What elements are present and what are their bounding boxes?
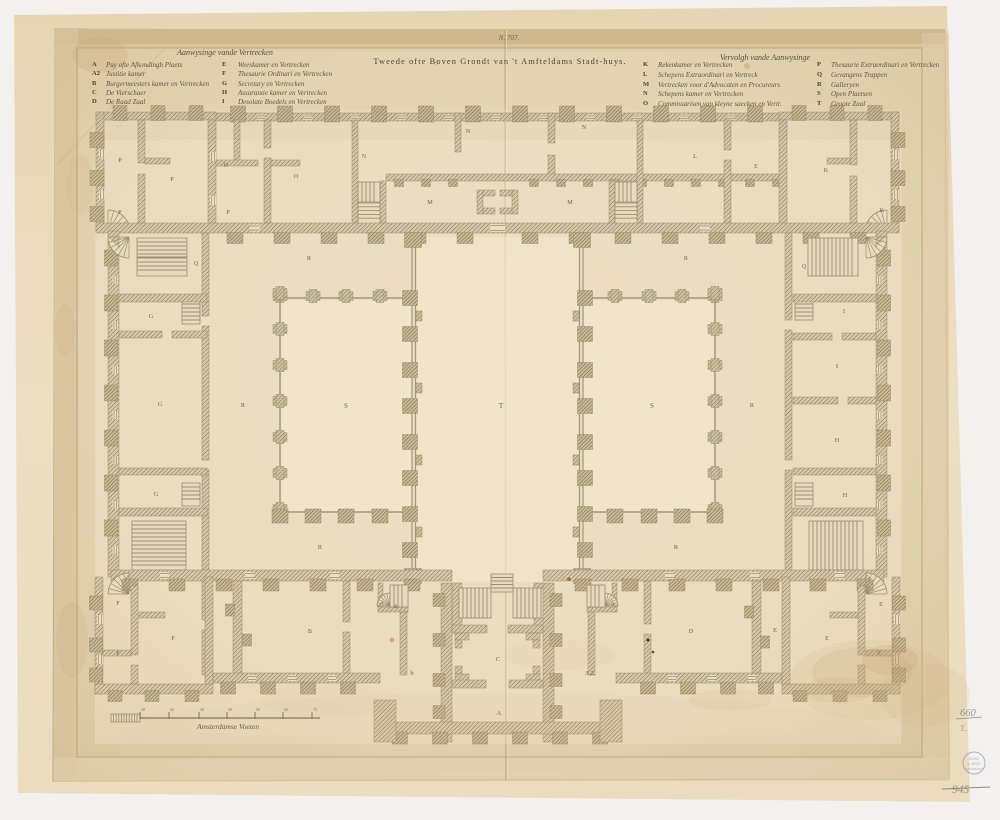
svg-text:O: O bbox=[294, 173, 299, 180]
svg-text:AMSTERDAM: AMSTERDAM bbox=[965, 767, 984, 771]
svg-text:E: E bbox=[879, 601, 883, 608]
svg-text:N: N bbox=[362, 153, 367, 160]
svg-text:G: G bbox=[149, 313, 154, 320]
svg-text:A.2.: A.2. bbox=[585, 670, 596, 677]
svg-text:N. 707.: N. 707. bbox=[498, 34, 520, 42]
svg-text:T: T bbox=[499, 401, 504, 410]
svg-text:10: 10 bbox=[141, 707, 145, 712]
svg-text:L: L bbox=[693, 153, 697, 160]
svg-text:v. ECK: v. ECK bbox=[968, 761, 980, 766]
svg-text:S: S bbox=[344, 402, 348, 410]
svg-text:20: 20 bbox=[170, 707, 174, 712]
svg-text:B: B bbox=[394, 604, 398, 610]
svg-text:F: F bbox=[116, 650, 120, 657]
svg-text:I: I bbox=[843, 308, 845, 315]
svg-text:F: F bbox=[116, 600, 120, 607]
svg-text:S: S bbox=[650, 402, 654, 410]
svg-text:G: G bbox=[158, 401, 163, 408]
svg-text:P: P bbox=[118, 209, 122, 216]
svg-text:C: C bbox=[496, 656, 500, 663]
svg-text:945: 945 bbox=[952, 784, 970, 796]
svg-text:b: b bbox=[410, 670, 413, 677]
svg-text:T..: T.. bbox=[960, 724, 968, 733]
svg-text:Q: Q bbox=[802, 263, 807, 270]
svg-text:P: P bbox=[226, 209, 230, 216]
svg-text:M: M bbox=[427, 199, 433, 206]
svg-text:O: O bbox=[224, 162, 229, 169]
svg-text:B: B bbox=[308, 628, 312, 635]
svg-text:D: D bbox=[689, 628, 694, 635]
svg-text:I: I bbox=[836, 363, 838, 370]
svg-text:P: P bbox=[170, 176, 174, 183]
svg-text:E: E bbox=[773, 627, 777, 634]
svg-text:G: G bbox=[154, 491, 159, 498]
svg-text:K: K bbox=[824, 167, 829, 174]
svg-text:H: H bbox=[835, 437, 840, 444]
svg-text:H: H bbox=[843, 492, 848, 499]
svg-text:E: E bbox=[825, 635, 829, 642]
svg-text:Q: Q bbox=[194, 260, 199, 267]
svg-text:F: F bbox=[171, 635, 175, 642]
svg-text:K: K bbox=[880, 207, 885, 214]
svg-text:E: E bbox=[754, 163, 758, 170]
svg-text:P: P bbox=[118, 157, 122, 164]
svg-text:M: M bbox=[567, 199, 573, 206]
